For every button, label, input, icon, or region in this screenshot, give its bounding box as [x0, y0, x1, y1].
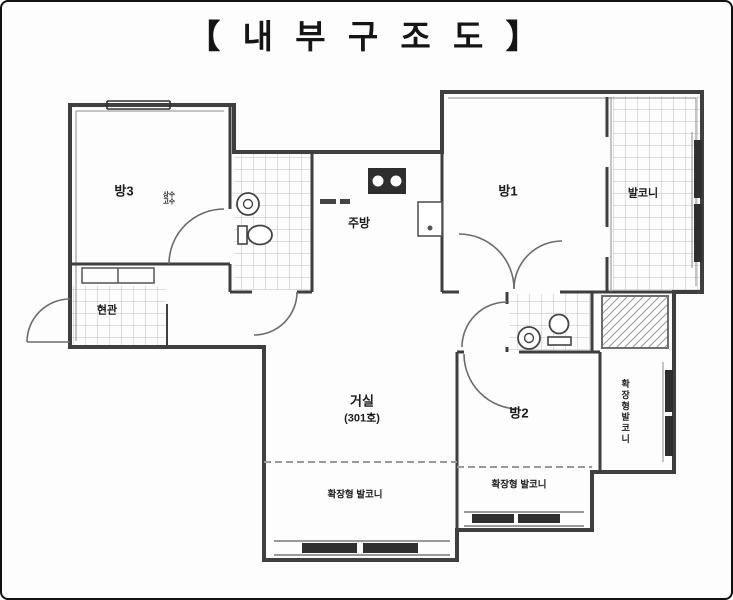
kitchen-sink-icon: [418, 202, 442, 236]
meter-note-line2: 고수: [163, 199, 175, 206]
door-arc-bathroom1: [254, 292, 297, 335]
hatched-shaft: [602, 296, 668, 348]
room-label-balcony-ext-right: 확장형발코니: [620, 379, 630, 445]
room-label-room3: 방3: [114, 185, 133, 200]
door-arc-room3: [169, 209, 224, 264]
window-balcony-bottom-left: [274, 541, 450, 555]
toilet-icon-bathroom2: [548, 315, 571, 346]
washbasin-icon-bathroom2: [518, 327, 540, 349]
entrance-cabinet: [82, 268, 154, 283]
door-arc-room1-left: [459, 234, 514, 289]
floorplan: 방3 상수 고수 주방 방1 발코니 현관 거실 (301호) 방2 확장형발코…: [2, 2, 731, 598]
tiled-floor-bathroom1: [234, 154, 312, 290]
floorplan-page: 【 내 부 구 조 도 】: [0, 0, 733, 600]
washbasin-icon-bathroom1: [237, 193, 259, 215]
room-label-entrance: 현관: [97, 305, 117, 318]
floorplan-drawing: [2, 2, 731, 598]
tiled-floor-entrance: [72, 286, 166, 345]
room-label-balcony-ext-center: 확장형 발코니: [491, 481, 546, 492]
room-label-room2: 방2: [509, 407, 528, 422]
unit-number-label: (301호): [344, 413, 380, 426]
window-balcony-bottom-center: [464, 512, 584, 526]
room-label-room1: 방1: [498, 185, 517, 200]
door-arc-entrance: [27, 299, 70, 342]
toilet-icon-bathroom1: [238, 226, 272, 245]
room-label-balcony: 발코니: [628, 188, 658, 201]
door-arc-room2: [464, 354, 519, 409]
meter-note: 상수 고수: [163, 192, 175, 207]
window-balcony-narrow: [663, 362, 673, 462]
kitchen-counter: [320, 199, 350, 204]
stove-icon: [368, 168, 406, 194]
room-label-living: 거실: [350, 395, 374, 410]
room-label-kitchen: 주방: [348, 217, 370, 231]
door-arc-bathroom2: [462, 302, 507, 347]
door-arc-room1-right: [514, 241, 562, 289]
room-label-balcony-ext-left: 확장형 발코니: [327, 491, 382, 502]
balcony-divider-lines: [264, 462, 592, 467]
